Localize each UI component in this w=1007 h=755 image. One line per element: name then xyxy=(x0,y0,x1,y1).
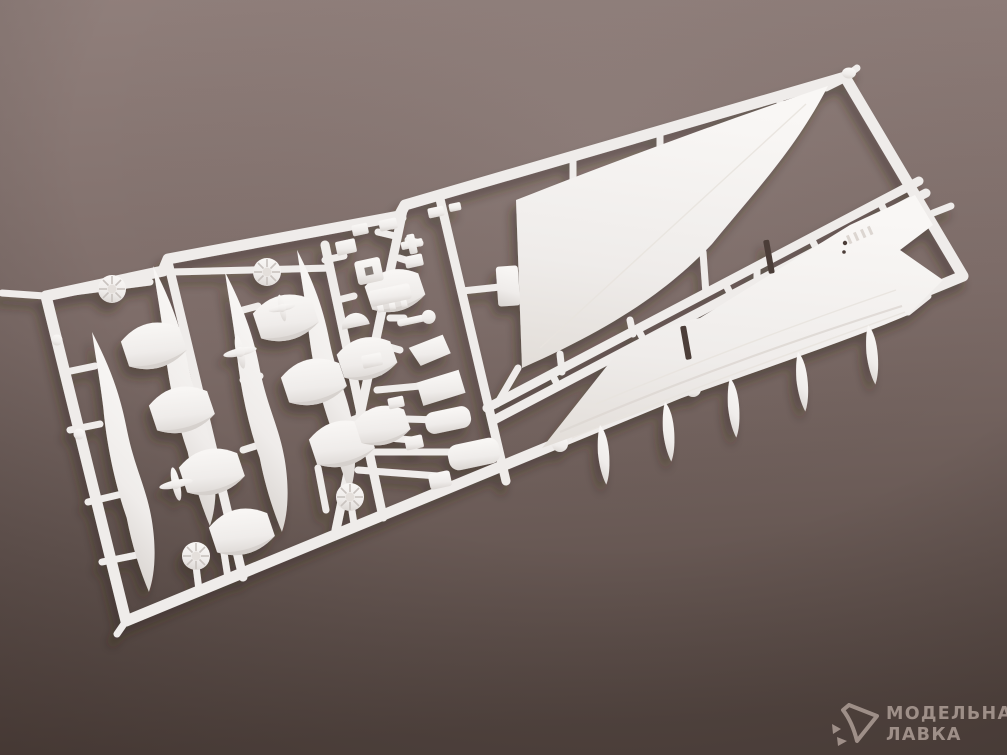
watermark-text-line1: МОДЕЛЬНАЯ xyxy=(886,704,1007,724)
photo-stage: МОДЕЛЬНАЯ ЛАВКА xyxy=(0,0,1007,755)
background-vignette xyxy=(0,0,1007,755)
sprue-photo: МОДЕЛЬНАЯ ЛАВКА xyxy=(0,0,1007,755)
watermark-text-line2: ЛАВКА xyxy=(886,725,962,745)
